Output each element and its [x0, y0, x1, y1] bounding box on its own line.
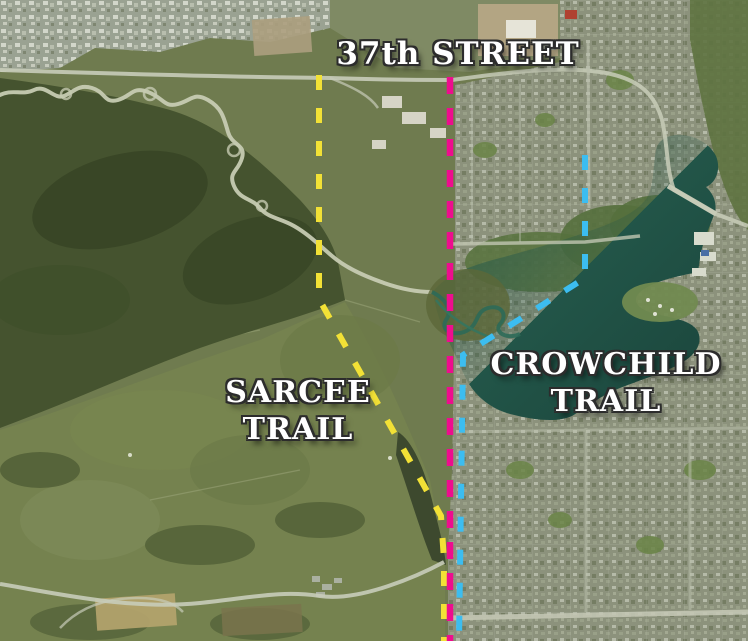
satellite-basemap	[0, 0, 748, 641]
label-sarcee-trail: SARCEE TRAIL	[225, 374, 370, 448]
map-screenshot: 37th STREET SARCEE TRAIL CROWCHILD TRAIL	[0, 0, 748, 641]
label-crowchild-line2: TRAIL	[491, 383, 722, 420]
label-sarcee-line2: TRAIL	[225, 411, 370, 448]
label-37th-street: 37th STREET	[336, 36, 579, 73]
label-crowchild-trail: CROWCHILD TRAIL	[491, 346, 722, 420]
label-crowchild-line1: CROWCHILD	[491, 346, 722, 383]
label-sarcee-line1: SARCEE	[225, 374, 370, 411]
peninsula	[622, 282, 698, 322]
